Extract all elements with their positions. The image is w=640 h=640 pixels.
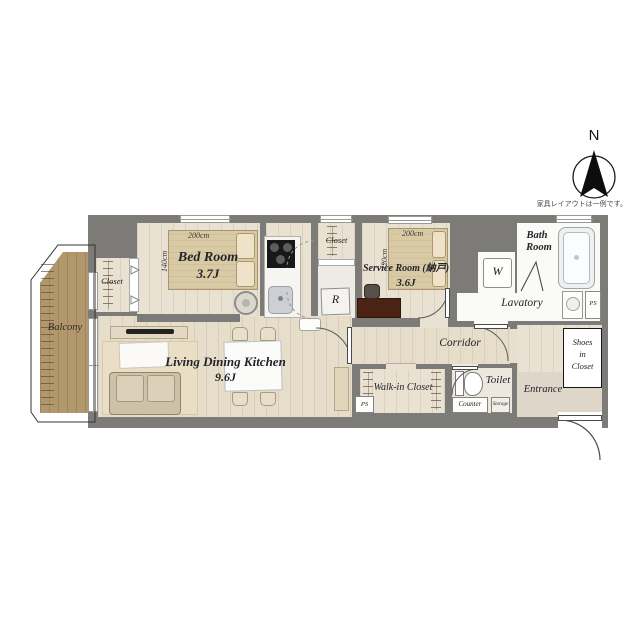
closet-left-label: Closet bbox=[92, 277, 132, 287]
service-bed-width-dim: 200cm bbox=[402, 229, 423, 238]
disclaimer-text: 家具レイアウトは一例です。 bbox=[537, 201, 627, 209]
refrigerator-label: R bbox=[321, 293, 350, 306]
north-label: N bbox=[585, 128, 603, 145]
ps-left-label: PS bbox=[355, 401, 374, 408]
washer-label: W bbox=[483, 265, 512, 278]
north-arrow-icon bbox=[573, 150, 615, 198]
ldk-door-leaf bbox=[347, 327, 352, 364]
window-bedroom bbox=[180, 215, 230, 223]
bath-label-line2: Room bbox=[517, 242, 561, 254]
vanity-bowl bbox=[566, 297, 580, 311]
toilet-door-leaf bbox=[452, 366, 478, 370]
shoes-closet-line3: Closet bbox=[563, 362, 602, 372]
bed-pillow bbox=[432, 231, 446, 258]
sofa-cushion bbox=[116, 375, 144, 402]
balcony-railing-ticks bbox=[41, 264, 54, 410]
service-room-size: 3.6J bbox=[352, 277, 460, 289]
ldk-counter-desk bbox=[334, 367, 349, 411]
counter-label: Counter bbox=[452, 401, 488, 409]
dining-chair bbox=[232, 327, 248, 341]
tv bbox=[126, 329, 174, 334]
service-door-leaf bbox=[445, 288, 450, 318]
walk-in-closet-label: Walk-in Closet bbox=[358, 382, 448, 393]
toilet-tank bbox=[455, 371, 464, 396]
wall-bedroom-south bbox=[137, 314, 240, 322]
kitchen-end-panel bbox=[299, 318, 321, 331]
wall-service-south bbox=[362, 318, 420, 327]
doorway-ldk bbox=[352, 327, 360, 364]
bath-label-line1: Bath bbox=[517, 230, 557, 242]
closet-mid-doors bbox=[318, 259, 355, 266]
service-bed-depth-dim: 120cm bbox=[380, 236, 389, 270]
window-bath bbox=[556, 215, 592, 223]
entrance-door-leaf bbox=[558, 415, 602, 421]
entrance-label: Entrance bbox=[512, 384, 574, 396]
lavatory-door-leaf bbox=[474, 324, 508, 329]
dining-chair bbox=[260, 327, 276, 341]
closet-mid-label: Closet bbox=[318, 236, 355, 246]
bedroom-label: Bed Room bbox=[162, 250, 254, 266]
bedroom-size: 3.7J bbox=[162, 267, 254, 282]
balcony-label: Balcony bbox=[40, 322, 90, 334]
window-service bbox=[388, 216, 432, 224]
desk bbox=[357, 298, 401, 318]
stove-burner bbox=[276, 255, 285, 264]
dining-chair bbox=[260, 392, 276, 406]
stove-burner bbox=[283, 243, 292, 252]
ps-right-label: PS bbox=[585, 300, 601, 307]
doorway-walkin bbox=[386, 363, 416, 370]
stove-burner bbox=[270, 243, 279, 252]
floor-plan: N 家具レイアウトは一例です。 Bed Room 3.7J 200cm 140c… bbox=[0, 0, 640, 640]
service-room-label: Service Room (納戸) bbox=[352, 263, 460, 274]
bed-depth-dim: 140cm bbox=[160, 238, 169, 272]
shoes-closet-line1: Shoes bbox=[563, 338, 602, 348]
sink-faucet bbox=[278, 296, 283, 301]
storage-label: Storage bbox=[489, 402, 512, 408]
bed-width-dim: 200cm bbox=[188, 231, 209, 240]
lavatory-label: Lavatory bbox=[478, 297, 566, 310]
dining-chair bbox=[232, 392, 248, 406]
round-stool-center bbox=[242, 299, 250, 307]
bathtub-drain bbox=[574, 255, 579, 260]
shoes-closet-line2: in bbox=[563, 350, 602, 360]
window-closet bbox=[320, 215, 352, 223]
ldk-size: 9.6J bbox=[143, 371, 308, 384]
doorway-service bbox=[420, 316, 448, 328]
ldk-label: Living Dining Kitchen bbox=[143, 355, 308, 370]
corridor-label: Corridor bbox=[405, 337, 515, 350]
